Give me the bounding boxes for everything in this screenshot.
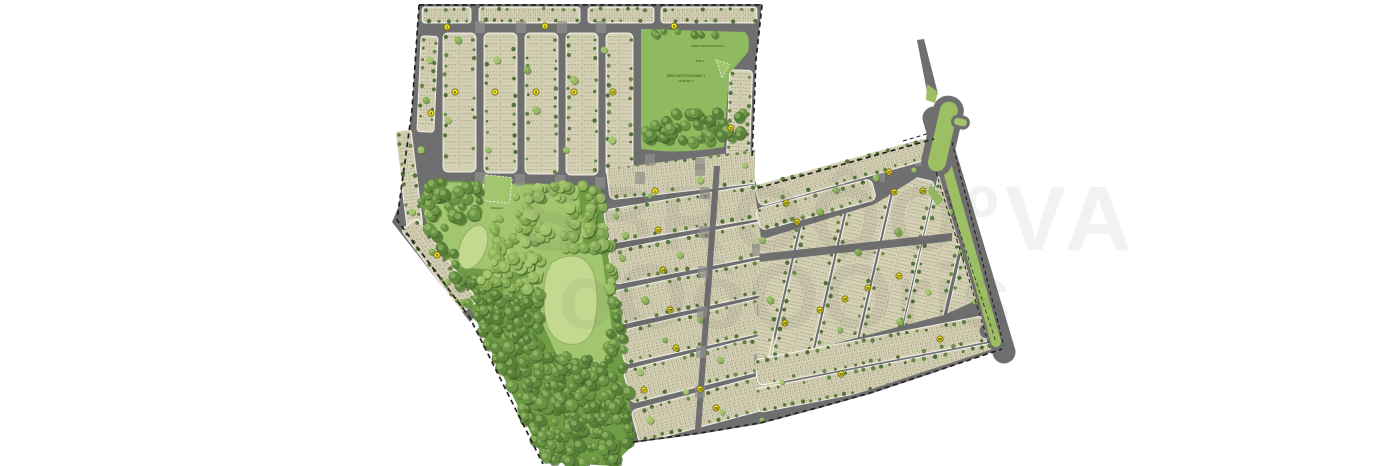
svg-text:19: 19 (714, 406, 718, 410)
svg-text:4: 4 (430, 111, 432, 115)
svg-text:ÁREA INSTITUCIONAL 1: ÁREA INSTITUCIONAL 1 (667, 74, 706, 78)
svg-text:8: 8 (535, 90, 537, 94)
svg-text:3: 3 (673, 24, 675, 28)
svg-text:2: 2 (544, 24, 546, 28)
svg-text:18: 18 (698, 387, 702, 391)
svg-text:5: 5 (436, 253, 438, 257)
svg-text:oOôOÕris: oOôOÕris (558, 245, 1014, 348)
svg-text:78.066,00 m²: 78.066,00 m² (678, 79, 693, 83)
svg-text:17: 17 (642, 388, 646, 392)
svg-text:PRAÇA 1: PRAÇA 1 (491, 206, 504, 210)
svg-text:7: 7 (494, 90, 496, 94)
svg-text:9: 9 (573, 90, 575, 94)
svg-text:10: 10 (611, 90, 615, 94)
svg-text:PDE 1: PDE 1 (696, 59, 705, 63)
svg-text:1: 1 (446, 25, 448, 29)
svg-text:ÁREA INSTITUCIONAL 2: ÁREA INSTITUCIONAL 2 (691, 44, 725, 48)
svg-text:11: 11 (729, 126, 733, 130)
svg-text:33: 33 (839, 372, 843, 376)
svg-text:6: 6 (454, 90, 456, 94)
